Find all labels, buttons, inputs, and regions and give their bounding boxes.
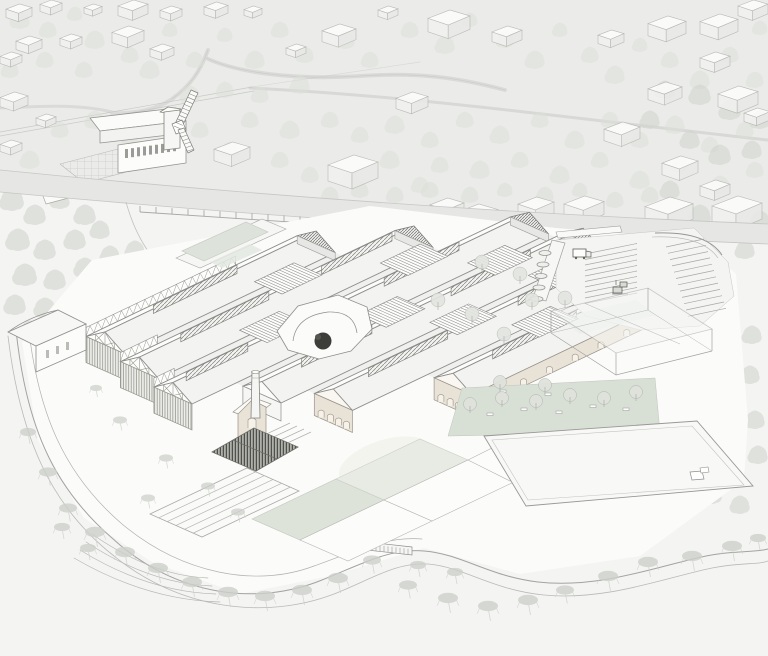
oval-skylight <box>533 285 545 290</box>
oval-skylight <box>537 262 549 267</box>
window-slit <box>125 149 128 158</box>
chimney-cap <box>252 371 260 374</box>
arch-window <box>546 366 552 373</box>
window-slit <box>131 148 134 157</box>
bench <box>556 411 562 414</box>
arch-window <box>521 379 527 386</box>
window-slit <box>155 145 158 154</box>
courtyard-tree-highlight <box>315 334 321 340</box>
arch-window <box>336 418 342 426</box>
site-rendering <box>0 0 768 656</box>
arch-window <box>318 410 324 418</box>
bench <box>623 408 629 411</box>
chimney <box>251 372 260 418</box>
bench <box>521 408 527 411</box>
bench <box>487 413 493 416</box>
aerial-drawing-canvas <box>0 0 768 656</box>
bench <box>545 393 551 396</box>
oval-skylight <box>535 274 547 279</box>
window-slit <box>143 146 146 155</box>
arch-window <box>572 354 578 361</box>
arch-window <box>343 421 349 429</box>
arch-window <box>447 398 453 406</box>
window-slit <box>149 146 152 155</box>
oval-skylight <box>539 251 551 256</box>
window-slit <box>137 147 140 156</box>
bench <box>590 405 596 408</box>
arch-window <box>438 394 444 402</box>
rooftop-unit-2 <box>700 467 709 473</box>
arch-window <box>327 414 333 422</box>
window-slit <box>161 144 164 153</box>
